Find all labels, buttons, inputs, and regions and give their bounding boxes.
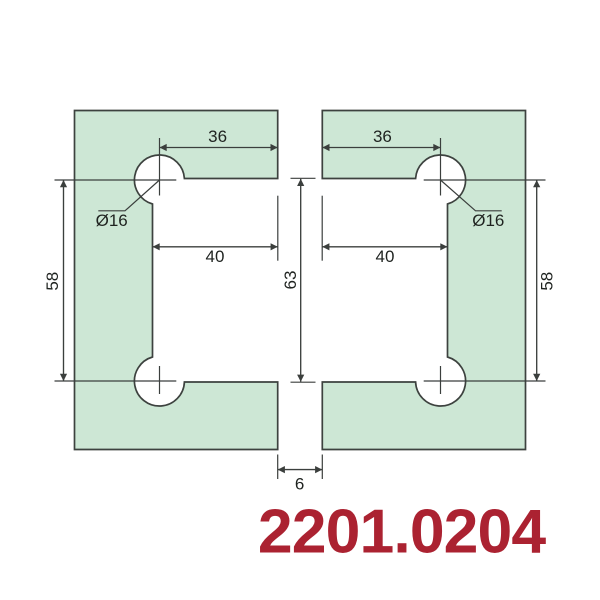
svg-text:40: 40 (206, 247, 225, 266)
svg-text:6: 6 (295, 475, 304, 494)
svg-text:Ø16: Ø16 (96, 211, 128, 230)
svg-text:58: 58 (538, 272, 557, 291)
svg-text:Ø16: Ø16 (472, 211, 504, 230)
svg-text:58: 58 (43, 272, 62, 291)
svg-text:2201.0204: 2201.0204 (258, 497, 546, 567)
svg-text:36: 36 (373, 127, 392, 146)
svg-text:40: 40 (376, 247, 395, 266)
svg-text:36: 36 (208, 127, 227, 146)
svg-text:63: 63 (281, 271, 300, 290)
